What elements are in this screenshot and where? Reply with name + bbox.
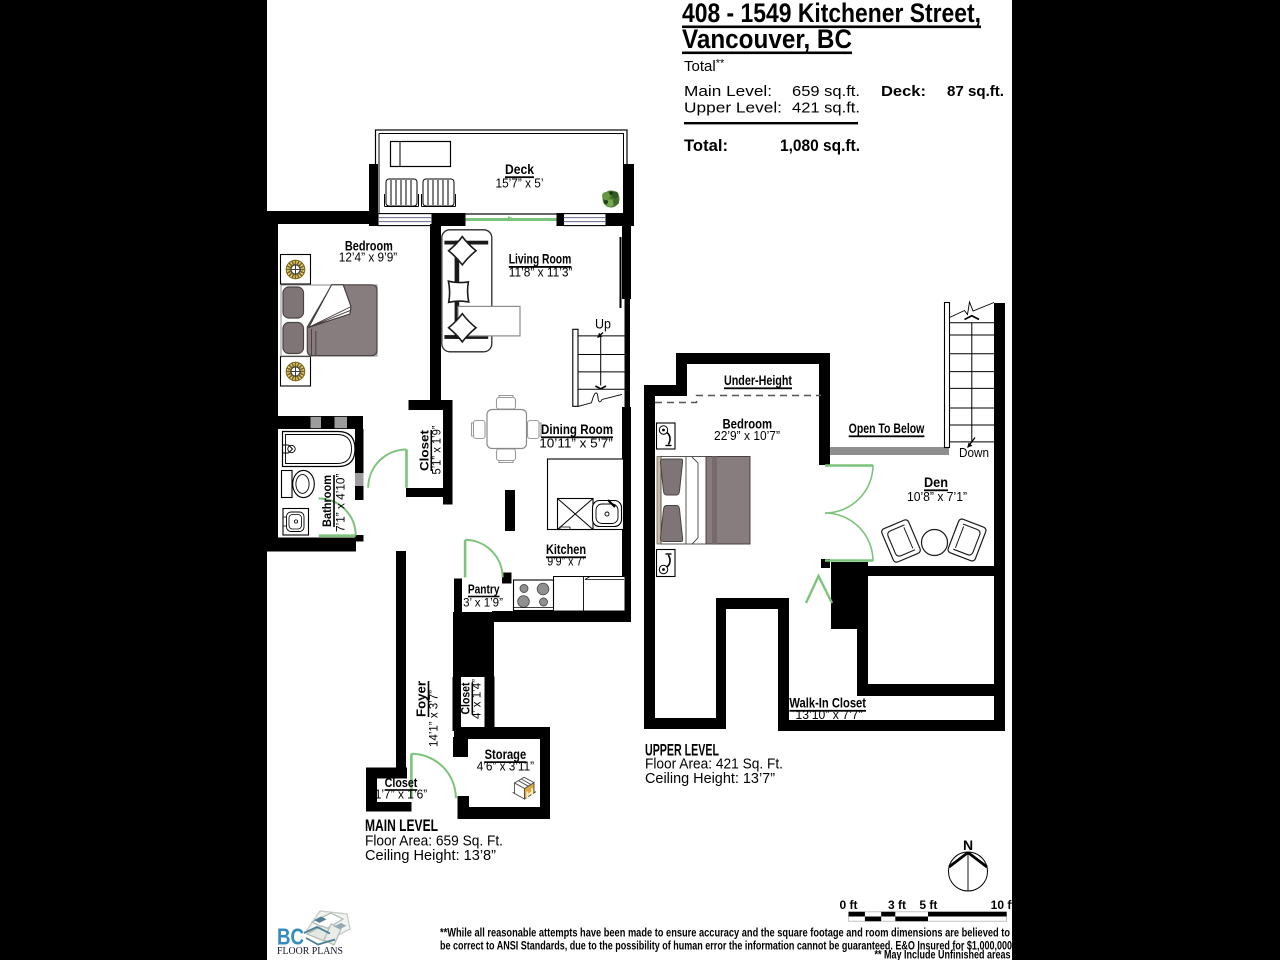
svg-text:12’4” x 9’9”: 12’4” x 9’9”	[339, 250, 398, 265]
svg-text:Down: Down	[959, 445, 989, 460]
svg-text:15’7” x 5’: 15’7” x 5’	[496, 176, 544, 191]
svg-text:14’1” x 3’7”: 14’1” x 3’7”	[427, 690, 441, 747]
svg-text:1,080 sq.ft.: 1,080 sq.ft.	[780, 137, 860, 155]
svg-text:10’11” x 5’7”: 10’11” x 5’7”	[539, 436, 613, 451]
svg-text:Upper Level:: Upper Level:	[684, 100, 782, 117]
svg-text:9’9” x 7’: 9’9” x 7’	[547, 554, 585, 569]
svg-text:7’1” x 4’10”: 7’1” x 4’10”	[336, 473, 348, 532]
svg-text:Under-Height: Under-Height	[724, 372, 792, 388]
svg-text:5’1” x 1’9”: 5’1” x 1’9”	[432, 425, 444, 474]
svg-text:22’9” x 10’7”: 22’9” x 10’7”	[714, 428, 780, 443]
svg-text:87 sq.ft.: 87 sq.ft.	[947, 83, 1004, 100]
svg-text:Pantry: Pantry	[468, 582, 500, 597]
svg-text:Total:: Total:	[684, 137, 728, 155]
svg-text:10’8” x 7’1”: 10’8” x 7’1”	[907, 489, 967, 504]
svg-text:11’8” x 11’3”: 11’8” x 11’3”	[509, 265, 573, 280]
svg-text:** May Include Unfinished area: ** May Include Unfinished areas	[875, 950, 1011, 960]
svg-text:0 ft: 0 ft	[840, 898, 858, 912]
svg-text:3 ft: 3 ft	[888, 898, 906, 912]
svg-text:Ceiling Height: 13’7”: Ceiling Height: 13’7”	[645, 770, 775, 787]
svg-text:421 sq.ft.: 421 sq.ft.	[792, 100, 860, 117]
svg-text:4’6” x 3’11”: 4’6” x 3’11”	[477, 760, 534, 774]
svg-text:Deck:: Deck:	[881, 83, 926, 100]
svg-text:659 sq.ft.: 659 sq.ft.	[792, 83, 860, 100]
svg-text:**While all reasonable attempt: **While all reasonable attempts have bee…	[440, 926, 1010, 940]
svg-text:Bathroom: Bathroom	[320, 475, 334, 527]
svg-text:Den: Den	[924, 474, 948, 490]
svg-text:3’ x 1’9”: 3’ x 1’9”	[463, 596, 503, 610]
svg-text:10 ft: 10 ft	[991, 898, 1016, 912]
svg-text:1’7” x 1’6”: 1’7” x 1’6”	[375, 788, 428, 802]
svg-text:Ceiling Height: 13’8”: Ceiling Height: 13’8”	[365, 847, 496, 864]
svg-text:Closet: Closet	[459, 683, 473, 715]
svg-text:Up: Up	[595, 317, 611, 332]
svg-text:5 ft: 5 ft	[919, 898, 937, 912]
svg-text:13’10” x 7’7”: 13’10” x 7’7”	[796, 708, 863, 722]
svg-text:4’ x 1’4”: 4’ x 1’4”	[472, 679, 484, 719]
svg-text:Closet: Closet	[418, 430, 432, 471]
svg-text:Open To Below: Open To Below	[849, 420, 925, 436]
svg-text:FLOOR PLANS: FLOOR PLANS	[277, 946, 343, 957]
svg-text:N: N	[963, 837, 973, 853]
svg-text:Main Level:: Main Level:	[684, 83, 772, 100]
svg-text:Vancouver, BC: Vancouver, BC	[682, 24, 852, 54]
